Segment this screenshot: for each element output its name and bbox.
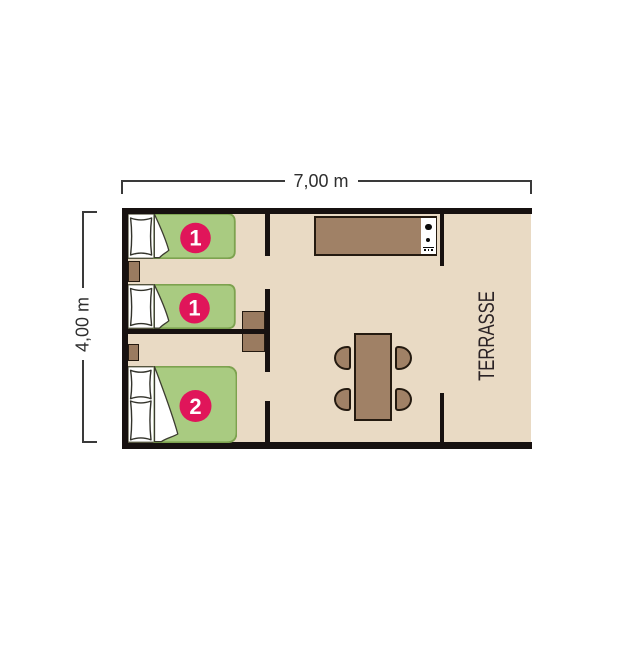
svg-text:2: 2 [189, 393, 201, 418]
svg-text:1: 1 [188, 296, 200, 321]
svg-text:1: 1 [189, 226, 201, 251]
